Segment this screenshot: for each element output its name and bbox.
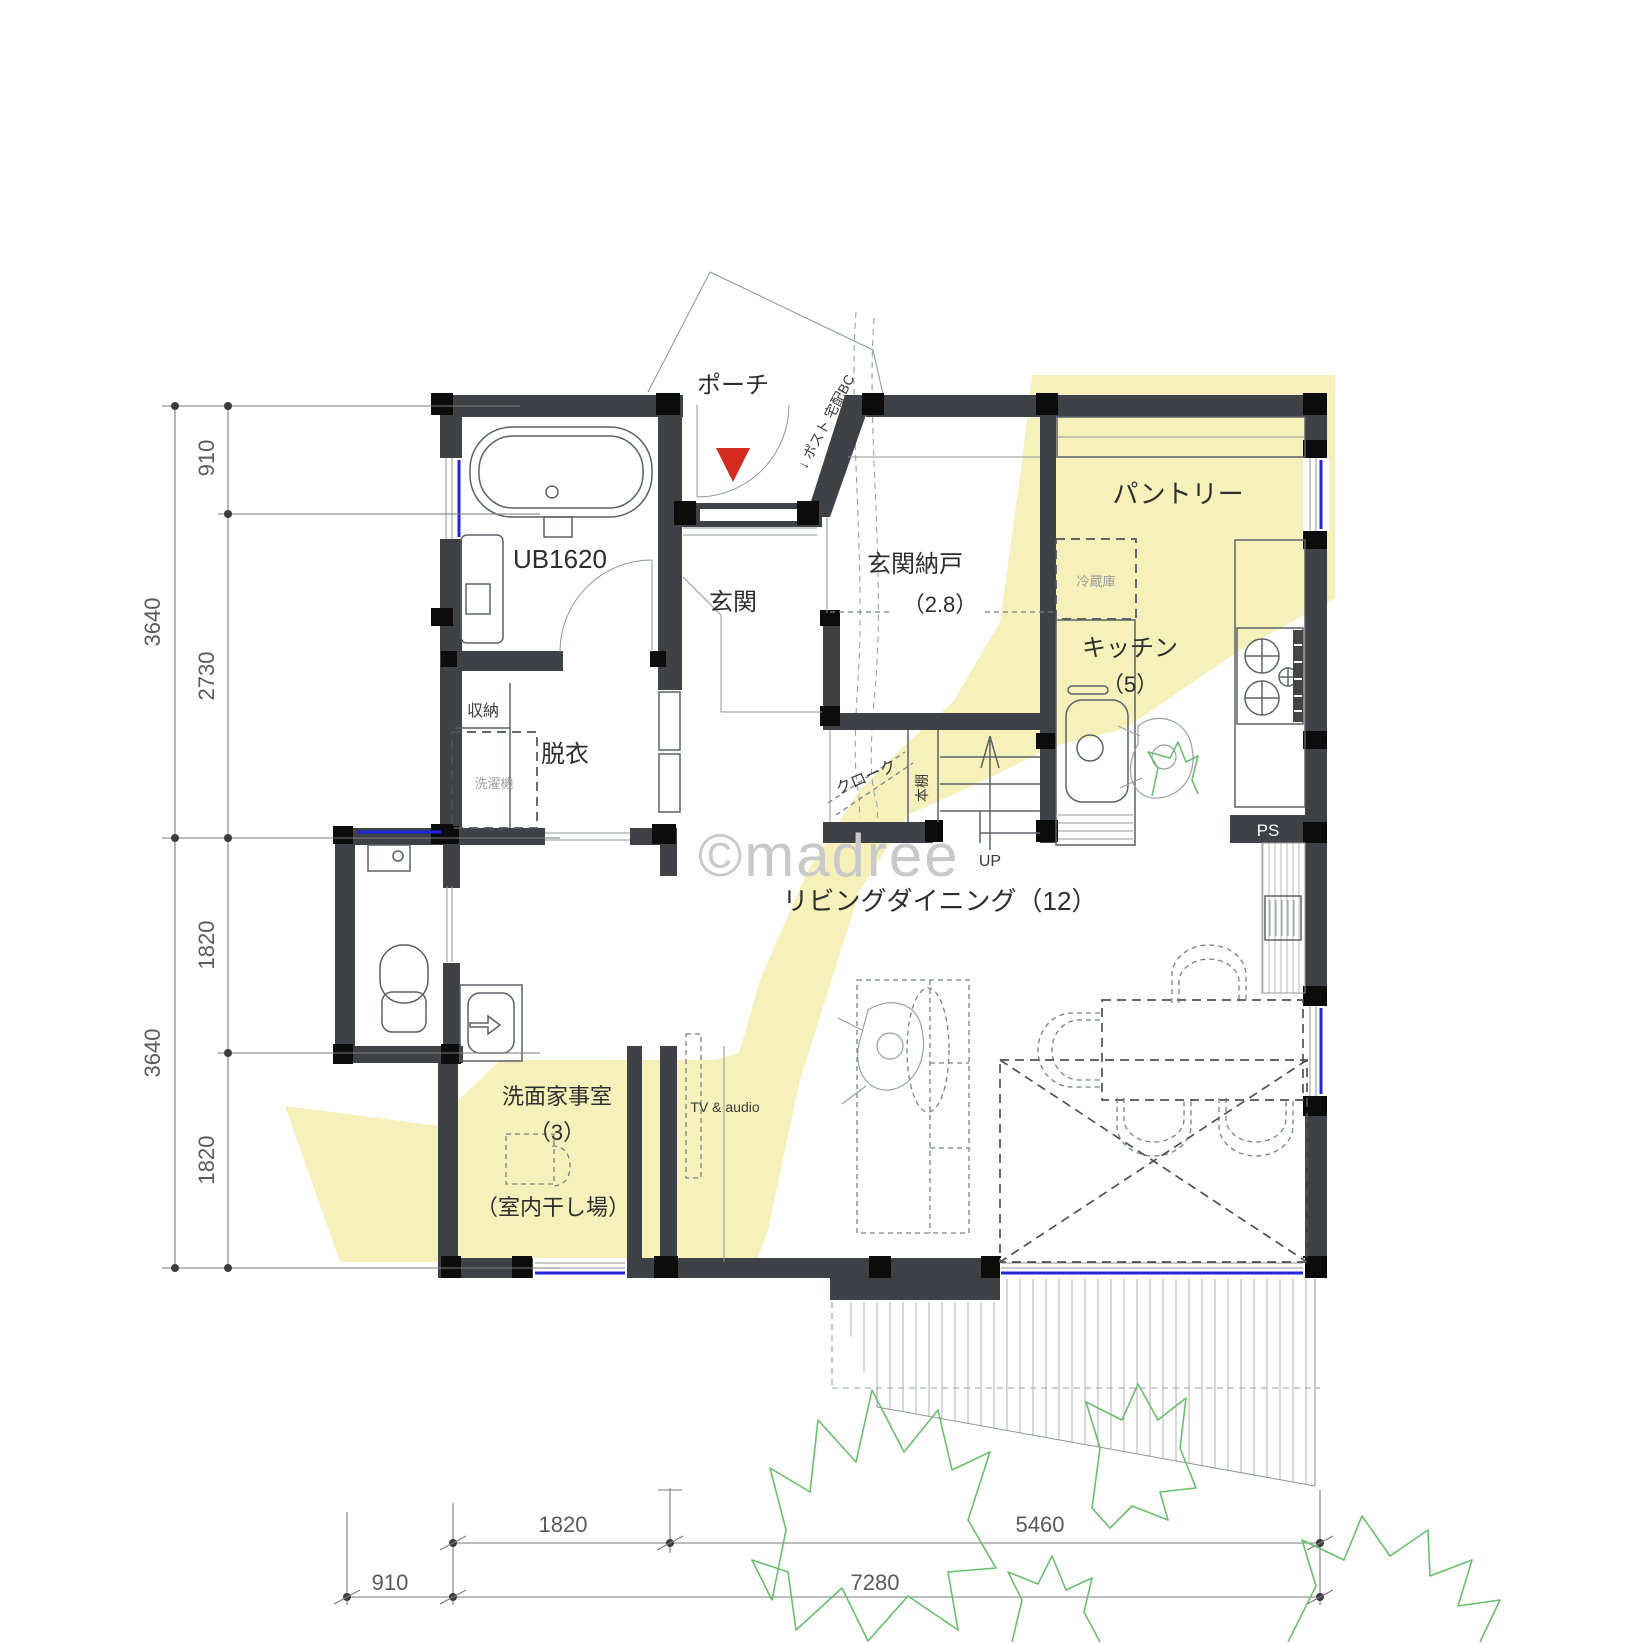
watermark: ©madree — [698, 822, 960, 889]
label-up: UP — [979, 853, 1001, 870]
label-laundry-area: （3） — [529, 1120, 585, 1145]
chair-icon — [1219, 1098, 1293, 1156]
floor-plan-svg: ©madree ポーチ 玄関 玄関納戸 （2.8） パントリー 冷蔵庫 キッチン… — [0, 0, 1643, 1643]
washbasin-icon — [460, 985, 522, 1061]
label-indoor-drying: （室内干し場） — [476, 1195, 630, 1220]
label-washing-machine: 洗濯機 — [474, 776, 513, 791]
bathtub-icon — [470, 427, 652, 537]
floor-plan-image: ©madree ポーチ 玄関 玄関納戸 （2.8） パントリー 冷蔵庫 キッチン… — [0, 0, 1643, 1643]
highlight-left-wedge — [285, 1106, 440, 1262]
dim-910-left: 910 — [194, 440, 219, 477]
label-refrigerator: 冷蔵庫 — [1076, 574, 1115, 589]
dim-5460-bottom: 5460 — [1016, 1512, 1065, 1537]
dim-7280-bottom: 7280 — [851, 1570, 900, 1595]
chair-icon — [1124, 1098, 1184, 1142]
dim-3640-bottom: 3640 — [140, 1029, 165, 1078]
dim-2730-left: 2730 — [194, 652, 219, 701]
dim-3640-top: 3640 — [140, 598, 165, 647]
label-living-dining: リビングダイニング（12） — [783, 886, 1098, 916]
dim-1820-left-a: 1820 — [194, 921, 219, 970]
label-bookshelf: 本棚 — [914, 774, 930, 802]
tree-icon — [1008, 1556, 1100, 1642]
highlight-laundry-room — [440, 1035, 800, 1262]
dim-1820-bottom: 1820 — [539, 1512, 588, 1537]
entry-marker-icon — [716, 448, 750, 482]
person-kitchen-icon — [1118, 718, 1193, 798]
chair-icon — [1172, 945, 1246, 1003]
tree-icon — [752, 1390, 996, 1641]
label-entrance-storage-area: （2.8） — [903, 592, 978, 617]
dining-table-icon — [1102, 1000, 1303, 1100]
chair-icon — [1226, 1098, 1286, 1142]
wood-deck — [832, 1279, 1320, 1486]
label-kitchen: キッチン — [1082, 635, 1178, 662]
porch-canopy — [648, 272, 883, 820]
chair-icon — [1052, 1020, 1100, 1080]
void-area — [1000, 1060, 1307, 1262]
label-pantry: パントリー — [1112, 479, 1243, 509]
toilet-icon — [368, 845, 428, 1032]
label-kitchen-area: （5） — [1102, 672, 1158, 697]
label-tv-audio: TV & audio — [690, 1099, 759, 1115]
shoe-cabinet-icon — [659, 754, 680, 812]
tree-icon — [1148, 742, 1198, 796]
dressing-door-icon — [545, 833, 630, 840]
bath-faucet-icon — [466, 584, 490, 614]
chair-icon — [1179, 959, 1239, 1003]
person-sofa-icon — [838, 1003, 924, 1104]
label-laundry-room: 洗面家事室 — [502, 1084, 612, 1109]
dim-910-bottom: 910 — [372, 1570, 409, 1595]
toilet-door-icon — [447, 886, 452, 962]
chair-icon — [1038, 1013, 1100, 1087]
bath-counter-icon — [461, 535, 503, 643]
label-porch: ポーチ — [697, 372, 769, 399]
chair-icon — [1117, 1098, 1191, 1156]
label-entrance: 玄関 — [709, 589, 757, 616]
label-dressing: 脱衣 — [541, 741, 589, 768]
dim-1820-left-b: 1820 — [194, 1136, 219, 1185]
label-entrance-storage: 玄関納戸 — [867, 551, 963, 578]
shoe-cabinet-icon — [659, 692, 680, 750]
label-unit-bath: UB1620 — [513, 544, 607, 574]
label-storage: 収納 — [467, 702, 499, 720]
sofa-icon — [857, 980, 969, 1233]
kitchen-counter-icon — [1262, 843, 1305, 993]
label-ps: PS — [1257, 821, 1280, 840]
furniture — [838, 945, 1307, 1262]
